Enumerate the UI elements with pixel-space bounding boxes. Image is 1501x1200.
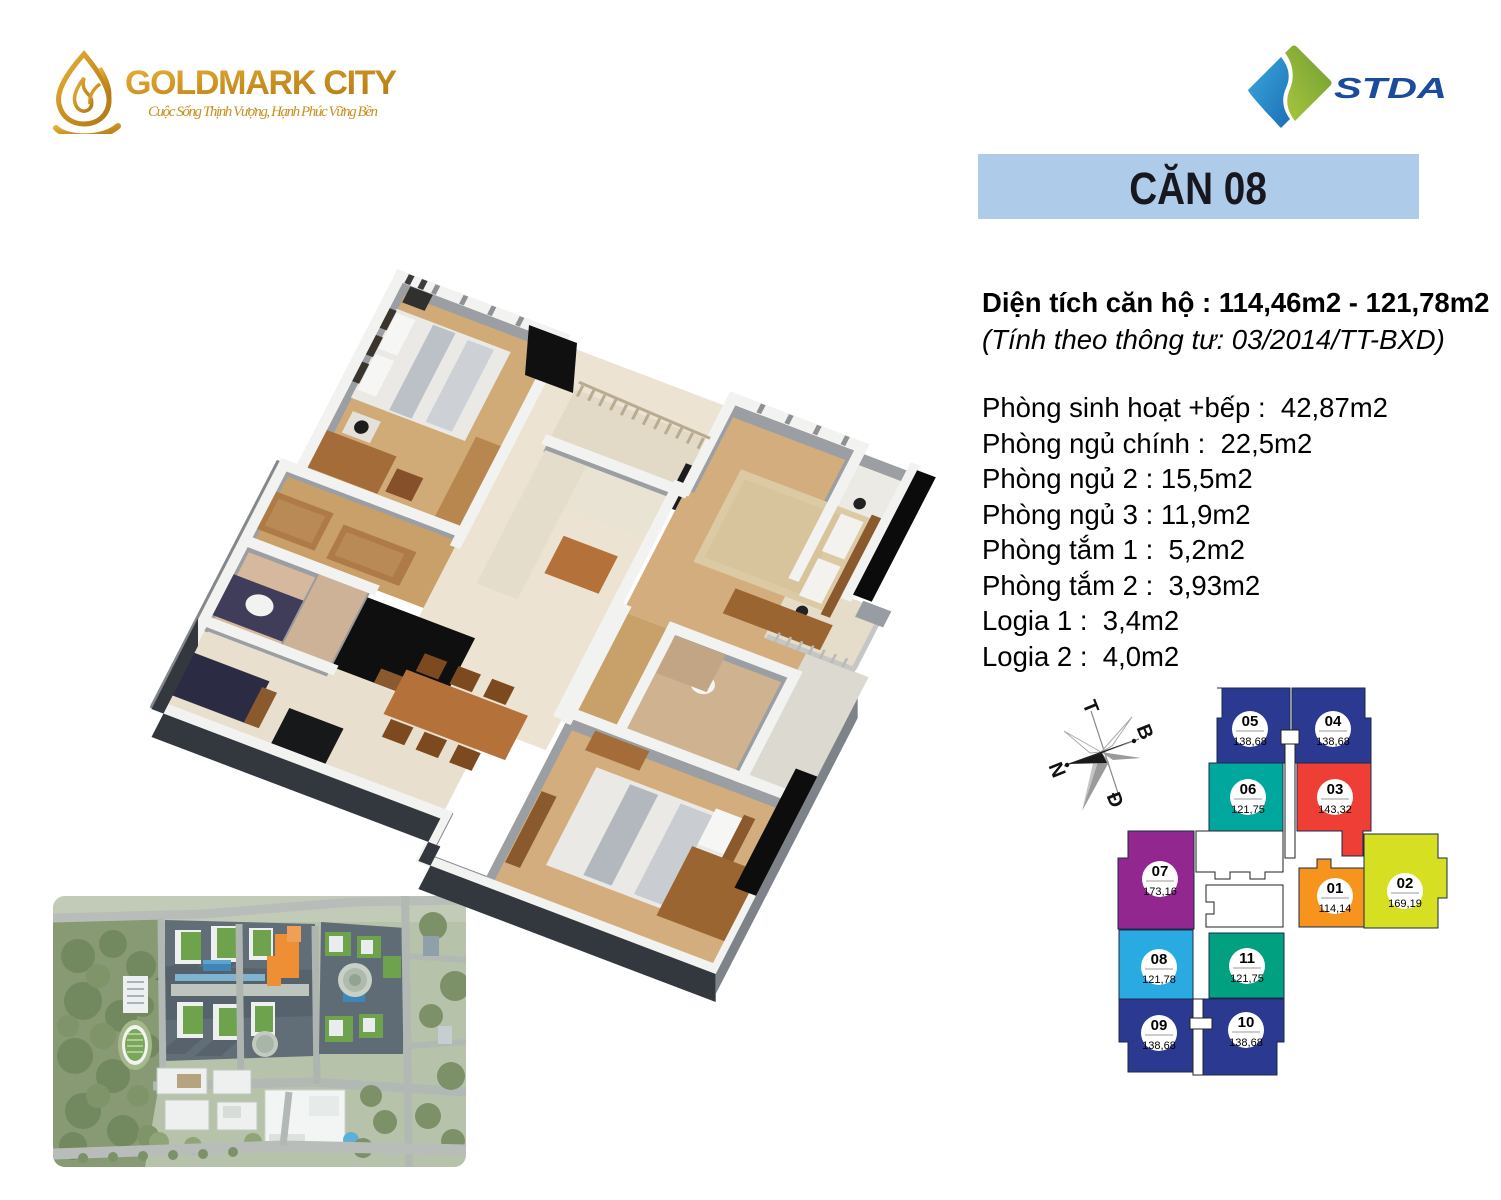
svg-text:121,75: 121,75 [1231,804,1265,816]
svg-text:121,78: 121,78 [1142,974,1176,986]
svg-text:09: 09 [1151,1017,1168,1034]
svg-text:138,68: 138,68 [1229,1037,1263,1049]
svg-text:02: 02 [1397,875,1414,892]
svg-text:01: 01 [1327,880,1344,897]
svg-text:138,68: 138,68 [1233,736,1267,748]
svg-text:121,75: 121,75 [1230,973,1264,985]
svg-text:STDA: STDA [1334,73,1447,105]
svg-text:04: 04 [1325,713,1342,730]
svg-text:114,14: 114,14 [1319,903,1352,915]
svg-text:173,16: 173,16 [1143,886,1177,898]
svg-text:N: N [1044,759,1070,781]
svg-text:06: 06 [1240,781,1257,798]
svg-text:138,68: 138,68 [1316,736,1350,748]
svg-text:T: T [1078,697,1103,717]
svg-text:169,19: 169,19 [1388,898,1422,910]
svg-text:143,32: 143,32 [1318,804,1352,816]
svg-text:08: 08 [1151,951,1168,968]
svg-text:138,68: 138,68 [1142,1040,1176,1052]
svg-text:03: 03 [1327,781,1344,798]
svg-text:05: 05 [1242,713,1259,730]
svg-text:07: 07 [1152,863,1169,880]
svg-text:11: 11 [1239,950,1255,967]
svg-text:10: 10 [1238,1014,1255,1031]
